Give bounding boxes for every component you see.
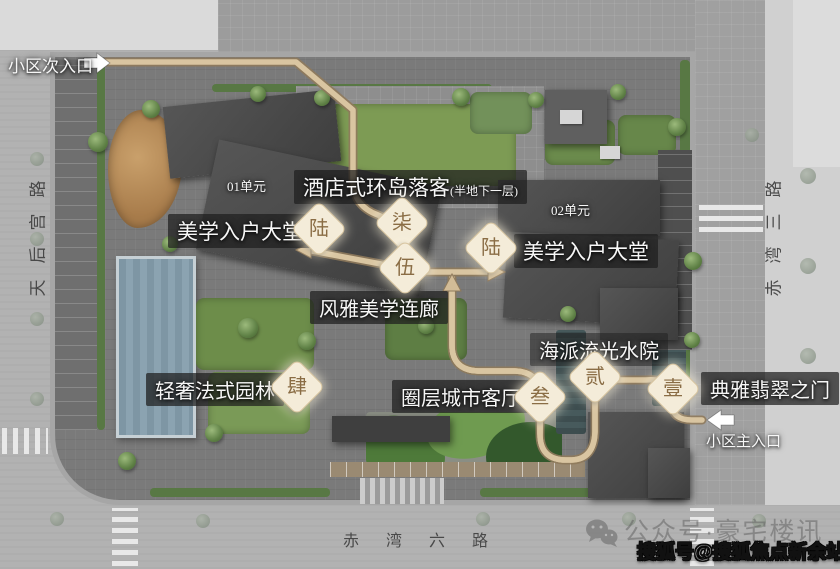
hotel-dropoff-note: (半地下一层) [450,184,518,198]
garden-lawn-5 [470,92,532,134]
jade-gate-label: 典雅翡翠之门 [701,372,839,405]
parking-strip-left [55,60,97,430]
french-garden-label: 轻奢法式园林 [146,373,284,406]
lobby-right-label: 美学入户大堂 [514,234,658,268]
sohu-watermark: 搜狐号@搜狐焦点新余站 [637,537,840,564]
hotel-dropoff-label: 酒店式环岛落客(半地下一层) [294,170,527,204]
unit01-label: 01单元 [227,176,266,195]
block-top-left [0,0,218,50]
hedge-bottom-west [150,488,330,497]
road-top-strip [218,0,765,52]
road-name-right: 赤湾三路 [760,131,785,331]
city-living-room-label: 圈层城市客厅 [392,380,530,413]
gate-plaza-stripes [360,478,444,504]
hotel-dropoff-text: 酒店式环岛落客 [303,176,450,200]
block-top-right [793,0,840,167]
crosswalk-right-road [699,205,763,232]
hedge-left [97,60,105,430]
rooftop-block-1 [560,110,582,124]
secondary-entrance-label: 小区次入口 [8,52,93,77]
main-entrance-label: 小区主入口 [706,430,781,451]
swimming-pool [116,256,196,438]
crosswalk-bottom-road-west [112,508,138,566]
rooftop-block-2 [600,146,620,159]
wechat-icon [583,515,621,553]
road-name-left: 天后宫路 [24,131,49,331]
road-name-bottom: 赤湾六路 [343,527,515,551]
parking-band-south [330,462,585,477]
corridor-label: 风雅美学连廊 [310,291,448,324]
building-southeast-wing [648,448,690,498]
garden-lawn-6 [618,115,676,155]
unit02-label: 02单元 [551,200,590,219]
site-plan-map: 小区次入口 酒店式环岛落客(半地下一层) 01单元 02单元 美学入户大堂 美学… [0,0,840,569]
building-south-podium [332,416,450,442]
lobby-left-label: 美学入户大堂 [168,214,312,248]
crosswalk-left-road [2,428,48,454]
